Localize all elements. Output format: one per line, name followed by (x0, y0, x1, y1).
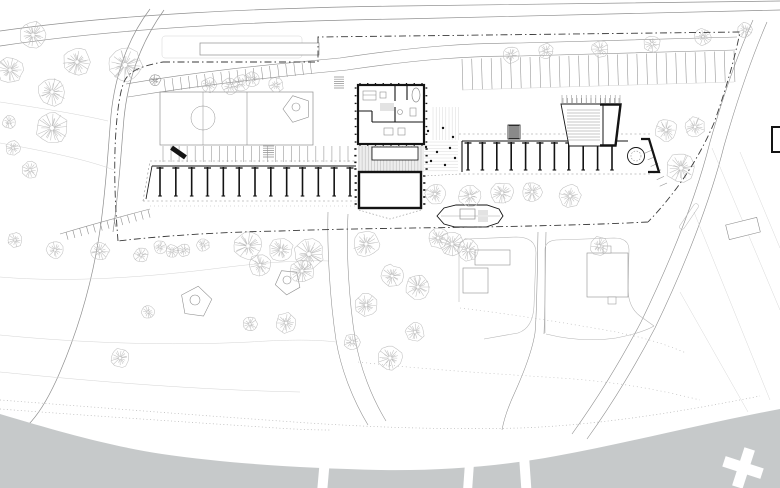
tree (354, 231, 380, 256)
tree (738, 22, 753, 37)
pavilion-pentagon-core (292, 103, 300, 111)
barn (726, 217, 761, 239)
top-road-edge (0, 1, 780, 31)
tree (695, 28, 712, 45)
parking-stalls (598, 55, 599, 86)
tree (406, 275, 430, 299)
tree (539, 43, 553, 59)
parking-stalls (627, 54, 628, 85)
tree (277, 312, 296, 333)
parking-stalls (164, 79, 166, 92)
street-parking-stalls (93, 225, 95, 233)
deck-stage (372, 147, 418, 160)
parking-stalls (579, 56, 580, 87)
contour (0, 143, 114, 170)
parking-stalls (269, 66, 271, 79)
parking-stalls (559, 56, 560, 87)
top-road-edge (0, 10, 780, 46)
parking-stalls (685, 52, 686, 83)
street-parking-stalls (66, 232, 68, 240)
bollards (444, 164, 446, 166)
parking-stalls (221, 72, 223, 85)
house-annex (608, 297, 616, 304)
parking-stalls (286, 64, 288, 77)
pavilion-pentagon (182, 286, 212, 316)
street-parking-stalls (128, 216, 130, 224)
tree (196, 239, 209, 251)
bollards (442, 127, 444, 129)
bollards (430, 160, 432, 162)
tree (503, 47, 519, 64)
contour (0, 335, 336, 344)
tree (243, 317, 257, 331)
bollards (436, 151, 438, 153)
contour (0, 261, 329, 280)
shore-contour (0, 409, 330, 430)
house (463, 268, 488, 293)
tree (22, 161, 37, 178)
tree (177, 244, 190, 257)
layer-boundary (115, 32, 740, 241)
street-parking-stalls (121, 217, 123, 225)
existing-building (200, 43, 319, 55)
parking-stalls (172, 78, 174, 91)
tree (249, 255, 270, 276)
tree (355, 294, 377, 317)
street-parking-stalls (107, 221, 109, 229)
tree (656, 120, 677, 142)
parking-stalls (637, 54, 638, 85)
interior-stairs (381, 103, 393, 111)
parking-stalls (302, 62, 304, 75)
tree (591, 41, 607, 58)
tree (234, 232, 262, 260)
street-parking-stalls (134, 214, 136, 222)
parking-stalls (540, 57, 541, 88)
parking-stalls (645, 150, 652, 153)
hall-apron-dashed (359, 210, 421, 219)
parking-stalls (695, 52, 696, 83)
tree (91, 242, 110, 259)
field-line (694, 212, 770, 400)
site-plan-page (0, 0, 780, 488)
tree (667, 154, 695, 182)
house (475, 250, 510, 265)
pavilion-pentagon (275, 271, 300, 295)
parking-stalls (676, 53, 677, 84)
parking-stalls (724, 51, 725, 82)
parking-stalls (656, 53, 657, 84)
bollards (452, 136, 454, 138)
tree (381, 264, 404, 286)
tree (425, 184, 446, 204)
shore-contour (0, 396, 760, 429)
parking-stalls (617, 54, 618, 85)
tree (8, 233, 22, 248)
parking-stalls (549, 56, 550, 87)
parking-stalls (657, 176, 664, 179)
parking-stalls (501, 58, 502, 89)
tree (344, 335, 360, 350)
parking-stalls (462, 59, 463, 90)
link-dashed (424, 174, 460, 176)
stairs (263, 146, 274, 157)
street-parking-stalls (141, 212, 143, 220)
tree (491, 183, 514, 203)
pier (463, 463, 474, 488)
parking-stalls (481, 58, 482, 89)
parking-stalls (569, 56, 570, 87)
parking-stalls (608, 55, 609, 86)
pavilion-pentagon-core (283, 276, 291, 284)
bike-racks (433, 107, 459, 140)
parking-stalls (511, 58, 512, 89)
pavilion-pentagon (283, 96, 308, 123)
tree (111, 348, 129, 367)
contour-dotted (460, 308, 686, 353)
parking-stalls (294, 63, 296, 76)
footpath-edge (347, 214, 386, 421)
traffic-island (679, 203, 700, 231)
hall (359, 172, 421, 208)
tree (523, 182, 543, 201)
tree (270, 239, 293, 261)
tree (685, 117, 704, 137)
bollards (427, 130, 429, 132)
tree (439, 232, 464, 256)
tree (46, 242, 63, 259)
house (587, 253, 628, 297)
circular-kiosk (628, 148, 645, 165)
tree (154, 241, 166, 254)
water (0, 409, 780, 488)
contour-dotted (358, 362, 700, 400)
field-line (680, 292, 748, 412)
parking-stalls (278, 65, 280, 78)
footpath-edge (328, 212, 368, 425)
site-plan-canvas (0, 0, 780, 488)
parking-stalls (261, 67, 263, 80)
tree (133, 248, 148, 262)
parking-stalls (647, 54, 648, 85)
site-boundary (115, 32, 740, 241)
stairs (334, 77, 344, 88)
street-parking-stalls (73, 230, 75, 238)
parking-stalls (188, 76, 190, 89)
parking-stalls (530, 57, 531, 88)
parking-stalls (715, 52, 716, 83)
tree (294, 239, 323, 270)
street-parking-curb (60, 209, 150, 234)
parking-stalls (588, 55, 589, 86)
street-parking-stalls (148, 210, 150, 218)
bollards (425, 146, 427, 148)
pavilion-pentagon-core (190, 295, 200, 305)
layer-structures (143, 77, 780, 227)
parking-stalls (472, 59, 473, 90)
contour (0, 372, 300, 392)
tree (429, 228, 448, 249)
bollards (449, 147, 451, 149)
tree (459, 185, 481, 206)
west-road-edge (113, 10, 164, 232)
bench (170, 146, 187, 160)
tree (63, 48, 91, 75)
contour (0, 102, 108, 121)
parking-stalls (705, 52, 706, 83)
tree (644, 36, 660, 52)
parking-stalls (310, 61, 312, 74)
tree (141, 306, 154, 319)
tree (6, 141, 21, 156)
parking-stalls (660, 183, 667, 186)
layer-water (0, 409, 780, 488)
tree (269, 78, 283, 93)
tree (379, 346, 403, 370)
tree (0, 58, 24, 83)
west-road-edge (28, 9, 150, 425)
tree (39, 78, 65, 106)
tree (36, 113, 67, 143)
parking-curb (462, 82, 734, 90)
parking-stalls (196, 75, 198, 88)
parking-stalls (666, 53, 667, 84)
tree (559, 184, 581, 207)
info-kiosk-stripes (509, 126, 519, 138)
tree (166, 245, 178, 258)
tree (405, 322, 424, 341)
parking-stalls (520, 57, 521, 88)
tree (3, 115, 16, 128)
parking-stalls (491, 58, 492, 89)
parking-stalls (180, 77, 182, 90)
bollards (454, 157, 456, 159)
carport-end-wall (146, 166, 152, 199)
drive-edge (128, 50, 735, 97)
street-parking-stalls (80, 228, 82, 236)
edge-building (772, 127, 780, 152)
street-parking-stalls (87, 227, 89, 235)
